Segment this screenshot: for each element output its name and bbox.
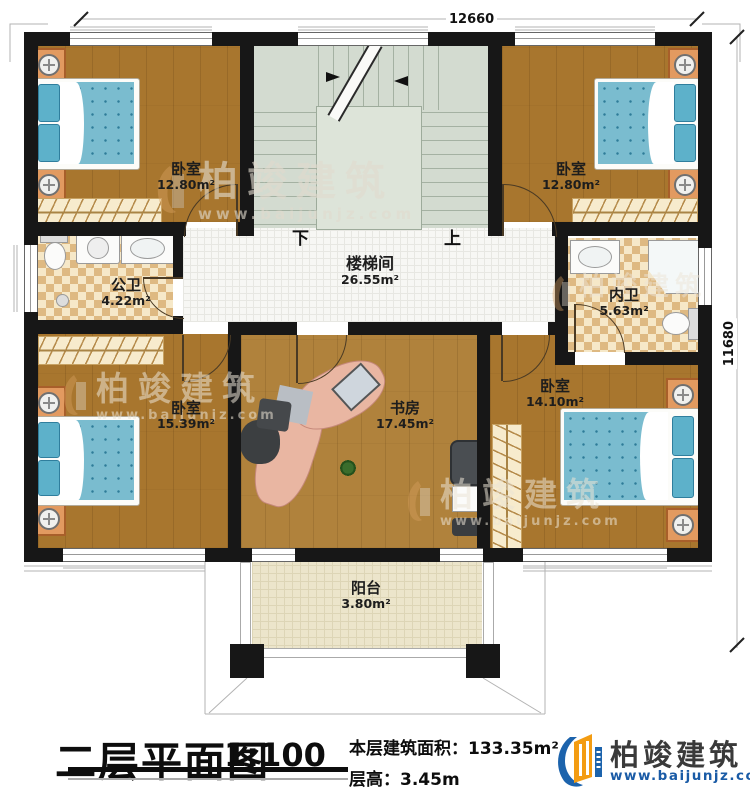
room-label-private-bath: 内卫 5.63m²	[554, 287, 694, 319]
balcony-railing-right	[483, 562, 494, 656]
sink-icon	[130, 238, 165, 259]
bed-sheet	[640, 412, 668, 500]
room-label-public-bath: 公卫 4.22m²	[56, 277, 196, 309]
balcony-railing-bottom	[240, 648, 494, 658]
wall	[24, 222, 186, 236]
stair-landing	[316, 106, 422, 230]
window	[70, 32, 212, 46]
room-label-study: 书房 17.45m²	[335, 400, 475, 432]
lamp-icon	[38, 392, 60, 414]
floor-plan-page: 卧室 12.80m² 卧室 12.80m² 公卫 4.22m² 楼梯间 26.5…	[0, 0, 750, 794]
window	[298, 32, 428, 46]
bed-sheet	[648, 82, 674, 164]
stair-arrow-left-icon	[394, 76, 408, 86]
title-block: 二层平面图 1:100 本层建筑面积：133.35m² 层高：3.45m 柏竣建…	[0, 722, 750, 794]
wall	[212, 32, 298, 46]
floor-area-label: 本层建筑面积：133.35m²	[349, 734, 559, 759]
wall	[698, 305, 712, 560]
washer-drum-icon	[87, 237, 109, 259]
window	[440, 548, 483, 562]
room-label-bedroom-bottom-right: 卧室 14.10m²	[485, 378, 625, 410]
balcony-railing-left	[240, 562, 251, 656]
window	[63, 548, 205, 562]
wall	[477, 335, 490, 553]
stair-down-label: 下	[292, 224, 309, 249]
wardrobe	[492, 424, 522, 550]
wall	[24, 320, 183, 334]
nightstand	[666, 508, 700, 542]
nightstand	[668, 48, 702, 82]
window	[24, 245, 38, 312]
room-label-bedroom-top-right: 卧室 12.80m²	[501, 161, 641, 193]
wall	[238, 222, 254, 236]
room-label-bedroom-top-left: 卧室 12.80m²	[116, 161, 256, 193]
wall	[24, 548, 63, 562]
wall	[24, 312, 38, 560]
side-table	[452, 486, 480, 512]
window	[523, 548, 667, 562]
lamp-icon	[38, 54, 60, 76]
pillow	[38, 84, 60, 122]
scale-label: 1:100	[224, 736, 326, 774]
pillow	[38, 460, 60, 496]
pillow	[672, 416, 694, 456]
lamp-icon	[38, 508, 60, 530]
stair-right-flight	[420, 112, 488, 228]
room-label-stairwell: 楼梯间 26.55m²	[300, 255, 440, 288]
pillow	[672, 458, 694, 498]
pillow	[38, 124, 60, 162]
plant-icon	[338, 458, 358, 478]
wall	[552, 222, 698, 236]
floor-height-label: 层高：3.45m	[349, 765, 460, 790]
wardrobe	[38, 336, 164, 365]
toilet-icon	[44, 242, 66, 270]
window	[252, 548, 295, 562]
dimension-top: 12660	[446, 12, 497, 27]
wall	[625, 352, 698, 365]
pillow	[38, 422, 60, 458]
wall	[173, 222, 183, 278]
window	[515, 32, 655, 46]
room-label-bedroom-bottom-left: 卧室 15.39m²	[116, 400, 256, 432]
wall	[667, 548, 712, 562]
wall	[24, 32, 38, 245]
title-underline-thin	[68, 778, 348, 780]
balcony-column	[466, 644, 500, 678]
computer-icon	[256, 398, 292, 432]
bed-sheet	[58, 420, 84, 500]
stair-left-flight	[254, 112, 316, 228]
wall	[228, 322, 297, 335]
balcony-column	[230, 644, 264, 678]
lamp-icon	[672, 384, 694, 406]
dimension-right: 11680	[722, 318, 737, 369]
lamp-icon	[674, 174, 696, 196]
wall	[348, 322, 502, 335]
stair-up-label: 上	[444, 224, 461, 249]
sink-icon	[578, 246, 612, 268]
lamp-icon	[672, 514, 694, 536]
wall	[295, 548, 440, 562]
nightstand	[666, 378, 700, 412]
wall	[555, 352, 575, 365]
wall	[240, 32, 254, 236]
lamp-icon	[38, 174, 60, 196]
pillow	[674, 84, 696, 122]
window	[698, 248, 712, 305]
bed-sheet	[58, 82, 84, 164]
pillow	[674, 124, 696, 162]
lamp-icon	[674, 54, 696, 76]
brand-url: www.baijunjz.com	[610, 768, 750, 784]
wall	[228, 335, 241, 553]
brand-logo-icon	[552, 727, 606, 789]
wall	[698, 32, 712, 248]
room-label-balcony: 阳台 3.80m²	[296, 580, 436, 612]
wall	[488, 32, 502, 236]
nightstand	[668, 168, 702, 202]
stair-arrow-right-icon	[326, 72, 340, 82]
